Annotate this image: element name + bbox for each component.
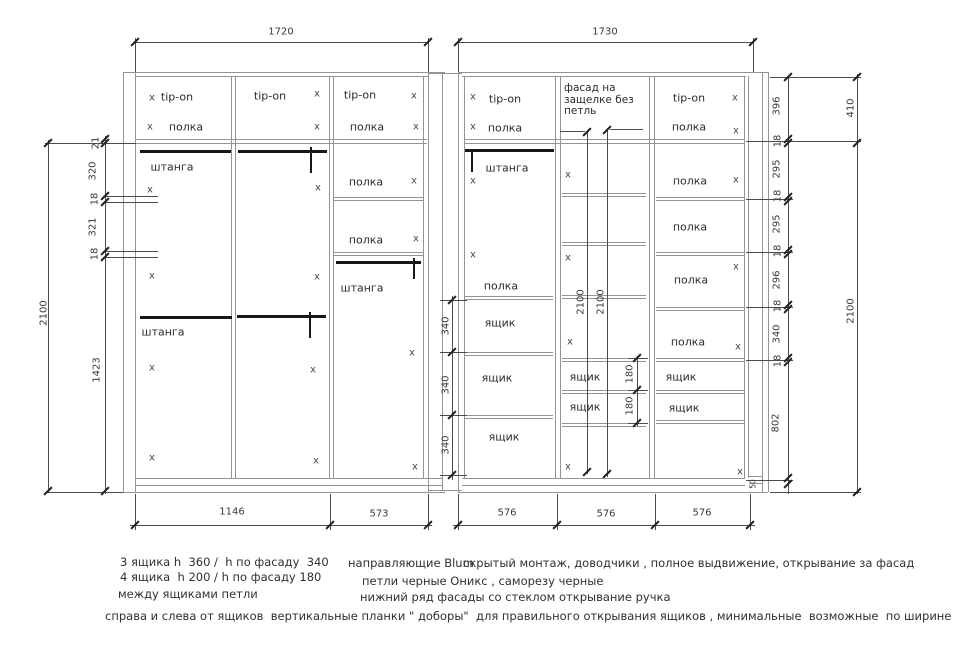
cabinet-line — [562, 245, 646, 246]
dimension-label: 2100 — [846, 298, 857, 323]
part-label: штанга — [142, 326, 185, 339]
hanging-rod — [237, 315, 326, 318]
dimension-label: 18 — [773, 300, 784, 313]
fastener-x-mark: x — [409, 348, 415, 359]
dimension-label: 320 — [88, 161, 99, 180]
dimension-label: 340 — [441, 316, 452, 335]
hanging-rod — [465, 149, 554, 152]
cabinet-line — [231, 76, 232, 478]
dimension-line — [440, 415, 467, 416]
note-text: скрытый монтаж, доводчики , полное выдви… — [463, 556, 914, 570]
rod-bracket — [413, 258, 415, 279]
fastener-x-mark: x — [733, 126, 739, 137]
dimension-label: 18 — [773, 245, 784, 258]
dimension-line — [135, 42, 428, 43]
cabinet-line — [656, 310, 744, 311]
fastener-x-mark: x — [147, 122, 153, 133]
cabinet-line — [656, 358, 744, 359]
fastener-x-mark: x — [315, 183, 321, 194]
fastener-x-mark: x — [565, 170, 571, 181]
dim-tick — [582, 467, 591, 476]
fastener-x-mark: x — [411, 176, 417, 187]
cabinet-line — [656, 423, 744, 424]
cabinet-line — [465, 296, 553, 297]
dimension-line — [103, 251, 158, 252]
dimension-label: 50 — [749, 479, 758, 489]
cabinet-line — [333, 255, 423, 256]
part-label: полка — [169, 121, 203, 134]
cabinet-line — [462, 485, 745, 486]
cabinet-line — [560, 76, 561, 478]
dimension-label: 18 — [773, 190, 784, 203]
cabinet-line — [555, 76, 556, 478]
dimension-label: 296 — [772, 270, 783, 289]
dimension-line — [770, 77, 861, 78]
part-label: ящик — [570, 401, 601, 414]
dimension-label: 396 — [772, 96, 783, 115]
cabinet-line — [744, 76, 745, 478]
cabinet-line — [458, 72, 459, 492]
cabinet-line — [329, 76, 330, 478]
wardrobe-drawing: 1720173011465735765765762132018321181423… — [0, 0, 966, 657]
cabinet-line — [136, 139, 427, 140]
fastener-x-mark: x — [310, 365, 316, 376]
dimension-label: 21 — [91, 137, 102, 150]
dimension-label: 576 — [596, 509, 615, 520]
fastener-x-mark: x — [565, 462, 571, 473]
cabinet-line — [235, 76, 236, 478]
dimension-line — [105, 136, 106, 494]
cabinet-line — [762, 72, 763, 492]
dimension-label: 295 — [772, 214, 783, 233]
part-label: ящик — [666, 371, 697, 384]
dimension-line — [103, 196, 158, 197]
cabinet-line — [465, 352, 553, 353]
fastener-x-mark: x — [149, 363, 155, 374]
cabinet-line — [458, 72, 768, 73]
fastener-x-mark: x — [149, 271, 155, 282]
dimension-label: 410 — [846, 98, 857, 117]
cabinet-line — [428, 72, 429, 492]
cabinet-line — [333, 252, 423, 253]
fastener-x-mark: x — [470, 176, 476, 187]
dimension-line — [103, 202, 158, 203]
rod-bracket — [310, 147, 312, 173]
cabinet-line — [748, 76, 749, 478]
dimension-line — [857, 74, 858, 494]
rod-bracket — [471, 149, 473, 172]
part-label: tip-on — [344, 89, 376, 102]
fastener-x-mark: x — [314, 122, 320, 133]
dimension-label: 2100 — [596, 289, 607, 314]
dimension-line — [746, 141, 861, 142]
dimension-label: 340 — [772, 324, 783, 343]
part-label: полка — [350, 121, 384, 134]
cabinet-line — [333, 200, 423, 201]
note-text: петли черные Оникс , саморезу черные — [362, 574, 603, 588]
rod-bracket — [309, 312, 311, 338]
cabinet-line — [464, 139, 744, 140]
note-text: между ящиками петли — [118, 587, 258, 601]
hanging-rod — [140, 316, 232, 319]
cabinet-line — [123, 492, 445, 493]
cabinet-line — [423, 76, 424, 478]
facade-latch-label-line: фасад на — [564, 83, 634, 95]
cabinet-line — [464, 143, 744, 144]
note-text: 4 ящика h 200 / h по фасаду 180 — [120, 570, 321, 584]
dimension-line — [587, 130, 588, 474]
cabinet-line — [428, 73, 462, 74]
cabinet-line — [562, 193, 646, 194]
fastener-x-mark: x — [313, 456, 319, 467]
note-text: справа и слева от ящиков вертикальные пл… — [105, 609, 951, 623]
fastener-x-mark: x — [149, 93, 155, 104]
facade-latch-label-line: петль — [564, 106, 634, 118]
part-label: ящик — [669, 402, 700, 415]
cabinet-line — [656, 255, 744, 256]
fastener-x-mark: x — [732, 93, 738, 104]
cabinet-line — [656, 197, 744, 198]
cabinet-line — [442, 73, 443, 490]
fastener-x-mark: x — [470, 92, 476, 103]
dimension-label: 18 — [773, 355, 784, 368]
dimension-label: 18 — [773, 135, 784, 148]
dimension-label: 573 — [369, 509, 388, 520]
fastener-x-mark: x — [149, 453, 155, 464]
dim-tick — [100, 486, 109, 495]
cabinet-line — [465, 355, 553, 356]
dimension-label: 340 — [441, 435, 452, 454]
cabinet-line — [123, 72, 445, 73]
cabinet-line — [135, 72, 136, 492]
fastener-x-mark: x — [737, 467, 743, 478]
cabinet-line — [656, 307, 744, 308]
note-text: нижний ряд фасады со стеклом открывание … — [360, 590, 671, 604]
dimension-label: 576 — [692, 508, 711, 519]
fastener-x-mark: x — [735, 342, 741, 353]
cabinet-line — [136, 143, 427, 144]
cabinet-line — [749, 476, 762, 477]
cabinet-line — [656, 252, 744, 253]
cabinet-line — [462, 76, 746, 77]
dimension-line — [103, 257, 158, 258]
part-label: полка — [674, 274, 708, 287]
part-label: полка — [349, 234, 383, 247]
dimension-label: 321 — [88, 217, 99, 236]
fastener-x-mark: x — [147, 185, 153, 196]
cabinet-line — [562, 242, 646, 243]
dimension-label: 802 — [771, 413, 782, 432]
cabinet-line — [333, 76, 334, 478]
part-label: штанга — [151, 161, 194, 174]
dimension-label: 180 — [625, 364, 636, 383]
cabinet-line — [465, 415, 553, 416]
dimension-line — [453, 525, 755, 526]
fastener-x-mark: x — [411, 91, 417, 102]
dimension-line — [607, 128, 608, 477]
cabinet-line — [654, 76, 655, 478]
cabinet-line — [333, 197, 423, 198]
note-text: направляющие Blum — [348, 556, 474, 570]
part-label: полка — [673, 221, 707, 234]
dimension-line — [440, 300, 467, 301]
part-label: штанга — [486, 162, 529, 175]
dimension-line — [45, 492, 123, 493]
cabinet-line — [656, 390, 744, 391]
fastener-x-mark: x — [413, 234, 419, 245]
part-label: tip-on — [161, 91, 193, 104]
dimension-label: 18 — [90, 248, 101, 261]
part-label: tip-on — [489, 93, 521, 106]
dimension-label: 2100 — [576, 289, 587, 314]
facade-latch-label: фасад назащелке безпетль — [564, 83, 634, 118]
cabinet-line — [562, 196, 646, 197]
part-label: ящик — [570, 371, 601, 384]
cabinet-line — [656, 361, 744, 362]
hanging-rod — [336, 261, 421, 264]
part-label: ящик — [489, 431, 520, 444]
fastener-x-mark: x — [733, 262, 739, 273]
fastener-x-mark: x — [567, 337, 573, 348]
note-text: 3 ящика h 360 / h по фасаду 340 — [120, 555, 329, 569]
dimension-label: 1720 — [268, 27, 293, 38]
cabinet-line — [656, 420, 744, 421]
dimension-label: 1423 — [92, 357, 103, 382]
fastener-x-mark: x — [412, 462, 418, 473]
part-label: полка — [484, 280, 518, 293]
fastener-x-mark: x — [413, 122, 419, 133]
dimension-label: 18 — [90, 193, 101, 206]
dimension-label: 180 — [625, 396, 636, 415]
cabinet-line — [135, 76, 429, 77]
hanging-rod — [140, 150, 231, 153]
fastener-x-mark: x — [314, 89, 320, 100]
fastener-x-mark: x — [470, 250, 476, 261]
cabinet-line — [465, 418, 553, 419]
part-label: полка — [672, 121, 706, 134]
cabinet-line — [465, 299, 553, 300]
dimension-label: 1730 — [592, 27, 617, 38]
cabinet-line — [464, 76, 465, 478]
part-label: полка — [349, 176, 383, 189]
dimension-line — [610, 129, 643, 130]
part-label: tip-on — [254, 90, 286, 103]
part-label: полка — [488, 122, 522, 135]
cabinet-line — [649, 76, 650, 478]
cabinet-line — [656, 200, 744, 201]
dimension-label: 340 — [441, 375, 452, 394]
dimension-label: 576 — [497, 508, 516, 519]
dimension-line — [452, 296, 453, 480]
cabinet-line — [428, 490, 462, 491]
dimension-line — [458, 42, 753, 43]
dimension-label: 295 — [772, 159, 783, 178]
fastener-x-mark: x — [314, 272, 320, 283]
fastener-x-mark: x — [565, 253, 571, 264]
cabinet-line — [135, 485, 443, 486]
dimension-line — [560, 131, 585, 132]
cabinet-line — [458, 492, 768, 493]
cabinet-line — [135, 478, 443, 479]
part-label: ящик — [485, 317, 516, 330]
part-label: tip-on — [673, 92, 705, 105]
part-label: полка — [671, 336, 705, 349]
part-label: ящик — [482, 372, 513, 385]
cabinet-line — [768, 72, 769, 492]
dim-tick — [43, 486, 52, 495]
hanging-rod — [238, 150, 327, 153]
dimension-line — [770, 492, 861, 493]
cabinet-line — [656, 393, 744, 394]
part-label: штанга — [341, 282, 384, 295]
cabinet-line — [123, 72, 124, 492]
fastener-x-mark: x — [470, 122, 476, 133]
part-label: полка — [673, 175, 707, 188]
dimension-line — [440, 352, 467, 353]
fastener-x-mark: x — [733, 175, 739, 186]
dimension-label: 1146 — [219, 507, 244, 518]
dimension-line — [440, 475, 467, 476]
dimension-line — [130, 525, 432, 526]
dimension-label: 2100 — [39, 300, 50, 325]
